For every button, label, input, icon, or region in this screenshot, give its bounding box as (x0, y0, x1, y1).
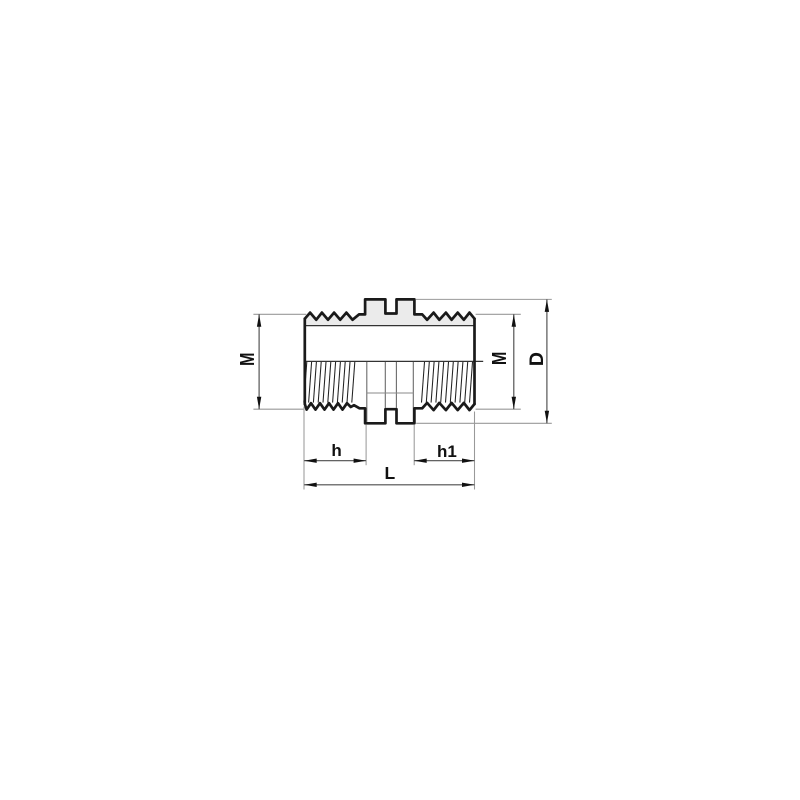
svg-text:L: L (384, 463, 395, 483)
svg-text:M: M (487, 352, 510, 365)
svg-text:h1: h1 (437, 442, 457, 461)
svg-text:D: D (526, 352, 548, 366)
svg-text:h: h (331, 441, 341, 460)
svg-text:M: M (235, 353, 258, 366)
